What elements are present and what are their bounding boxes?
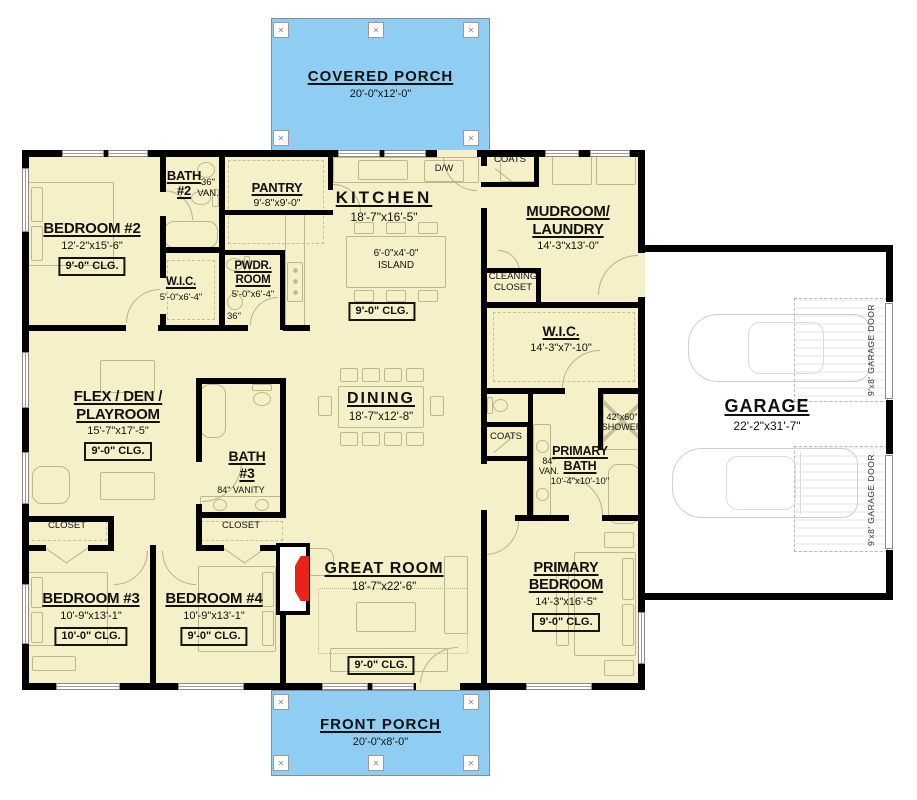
ceiling-note: 9'-0" CLG. — [84, 442, 151, 461]
wall — [481, 456, 531, 461]
room-title: BEDROOM #3 — [42, 590, 139, 608]
front-porch-dims: 20'-0"x8'-0" — [353, 736, 408, 749]
truck-bed-line — [800, 452, 801, 514]
wall — [196, 378, 202, 462]
bedroom4-label: BEDROOM #4 10'-9"x13'-1" 9'-0" CLG. — [165, 590, 262, 646]
pillow-symbol — [31, 187, 43, 222]
chair-symbol — [362, 432, 380, 446]
dresser-symbol — [32, 656, 76, 671]
window — [108, 150, 148, 157]
flex-room-label: FLEX / DEN / PLAYROOM 15'-7"x17'-5" 9'-0… — [55, 388, 181, 461]
ceiling-note: 9'-0" CLG. — [58, 257, 125, 276]
chair-symbol — [406, 432, 424, 446]
porch-column-icon — [273, 130, 289, 146]
wall — [600, 388, 645, 394]
room-dims: 18'-7"x12'-8" — [349, 411, 413, 425]
coats-closet-label: COATS — [490, 432, 522, 443]
wall — [527, 515, 569, 521]
wall — [22, 325, 126, 331]
window — [526, 683, 592, 690]
ceiling-note: 9'-0" CLG. — [180, 627, 247, 646]
front-porch-title: FRONT PORCH — [320, 716, 441, 734]
car-cabin-icon — [748, 322, 824, 374]
wall — [219, 210, 333, 215]
covered-porch-dims: 20'-0"x12'-0" — [350, 88, 412, 101]
great-room-label: GREAT ROOM 18'-7"x22'-6" — [324, 560, 443, 594]
garage-door-label: 9'x8' GARAGE DOOR — [862, 300, 880, 400]
island-text: ISLAND — [378, 260, 414, 271]
toilet-symbol — [493, 399, 508, 412]
wall — [219, 250, 285, 255]
room-title: BEDROOM #4 — [165, 590, 262, 608]
window — [62, 150, 104, 157]
room-dims: 5'-0"x6'-4" — [232, 289, 275, 300]
wall — [527, 422, 533, 518]
sink-symbol — [213, 499, 227, 511]
room-dims: 14'-3"x13'-0" — [537, 240, 599, 253]
wall — [280, 250, 285, 330]
primary-bedroom-label: PRIMARY BEDROOM 14'-3"x16'-5" 9'-0" CLG. — [517, 560, 615, 632]
stove-symbol — [287, 262, 303, 302]
door-opening — [638, 253, 645, 297]
toilet-tank-symbol — [487, 397, 493, 414]
shower-label: 42"x60" SHOWER — [599, 412, 645, 433]
coats-closet-label: COATS — [494, 155, 526, 166]
vanity-note: 84" VANITY — [217, 485, 265, 495]
floor-plan: COVERED PORCH 20'-0"x12'-0" FRONT PORCH … — [0, 0, 917, 800]
wall — [280, 614, 286, 683]
table-symbol — [100, 472, 155, 500]
vanity-note: 36" VAN. — [195, 178, 221, 200]
room-dims: 12'-2"x15'-6" — [61, 240, 123, 253]
chair-symbol — [430, 396, 444, 416]
kitchen-label: KITCHEN 18'-7"x16'-5" — [336, 188, 433, 224]
room-dims: 9'-8"x9'-0" — [253, 197, 300, 209]
wall — [158, 325, 248, 331]
room-title: MUDROOM/ LAUNDRY — [516, 203, 620, 238]
washer-symbol — [552, 155, 592, 185]
room-title: KITCHEN — [336, 188, 433, 208]
room-title: DINING — [347, 390, 415, 409]
room-title: GREAT ROOM — [324, 560, 443, 579]
ceiling-note: 10'-0" CLG. — [54, 627, 127, 646]
pillow-symbol — [31, 577, 43, 608]
window — [545, 150, 579, 157]
dryer-symbol — [596, 155, 636, 185]
window — [638, 612, 645, 664]
front-porch-label: FRONT PORCH 20'-0"x8'-0" — [320, 716, 441, 749]
pillow-symbol — [622, 604, 634, 646]
garage-door-label: 9'x8' GARAGE DOOR — [862, 450, 880, 550]
wall — [22, 545, 46, 551]
pillow-symbol — [31, 226, 43, 261]
window — [384, 150, 426, 157]
chair-symbol — [362, 368, 380, 382]
bath3-label: BATH #3 — [222, 448, 272, 481]
window — [56, 683, 120, 690]
bedroom2-label: BEDROOM #2 12'-2"x15'-6" 9'-0" CLG. — [43, 220, 140, 276]
chair-symbol — [340, 368, 358, 382]
ceiling-note: 9'-0" CLG. — [532, 613, 599, 632]
window — [338, 150, 380, 157]
bathtub-symbol — [164, 221, 218, 248]
window — [372, 683, 414, 690]
wall — [645, 245, 893, 252]
wall — [528, 388, 533, 422]
cleaning-closet-label: CLEANING CLOSET — [484, 272, 542, 294]
room-title: GARAGE — [724, 396, 809, 417]
covered-porch-title: COVERED PORCH — [308, 68, 454, 86]
window — [590, 150, 630, 157]
chair-symbol — [384, 432, 402, 446]
window — [22, 352, 29, 408]
armchair-symbol — [32, 466, 70, 504]
wall — [481, 510, 487, 690]
pillow-symbol — [262, 611, 274, 646]
room-title: BATH #3 — [222, 448, 272, 481]
door-opening — [416, 683, 460, 690]
sofa-symbol — [444, 556, 468, 634]
porch-column-icon — [463, 22, 479, 38]
pillow-symbol — [622, 558, 634, 600]
dining-label: DINING 18'-7"x12'-8" — [347, 390, 415, 424]
nightstand-symbol — [604, 532, 634, 548]
island-dims: 6'-0"x4'-0" — [374, 248, 419, 259]
toilet-tank-symbol — [252, 384, 272, 391]
room-title: PANTRY — [252, 180, 303, 195]
porch-column-icon — [463, 694, 479, 710]
room-title: BEDROOM #2 — [43, 220, 140, 238]
stool-symbol — [354, 290, 374, 302]
pillow-symbol — [262, 572, 274, 607]
wall — [645, 593, 893, 600]
closet-label: CLOSET — [222, 521, 260, 532]
closet-label: CLOSET — [48, 521, 86, 532]
porch-column-icon — [463, 755, 479, 771]
chair-symbol — [340, 432, 358, 446]
garage-door-panel — [885, 303, 893, 399]
pantry-label: PANTRY 9'-8"x9'-0" — [252, 180, 303, 210]
wall — [160, 247, 225, 253]
wall — [481, 422, 531, 427]
primary-wic-label: W.I.C. 14'-3"x7'-10" — [530, 323, 592, 354]
chair-symbol — [318, 396, 332, 416]
porch-column-icon — [273, 755, 289, 771]
window — [22, 584, 29, 644]
bathtub-symbol — [200, 384, 226, 438]
room-title: FLEX / DEN / PLAYROOM — [55, 388, 181, 423]
dishwasher-label: D/W — [435, 164, 453, 175]
ceiling-note: 9'-0" CLG. — [347, 656, 414, 675]
porch-column-icon — [368, 22, 384, 38]
wall — [602, 515, 645, 521]
island-label: 6'-0"x4'-0" ISLAND — [361, 248, 431, 271]
wall — [481, 182, 539, 187]
wall — [886, 550, 893, 600]
vanity-note: 84" VAN. — [535, 456, 563, 477]
kitchen-ceiling-label: 9'-0" CLG. — [348, 302, 415, 321]
stool-symbol — [386, 290, 406, 302]
pillow-symbol — [31, 612, 43, 643]
room-dims: 10'-9"x13'-1" — [183, 610, 245, 623]
garage-label: GARAGE 22'-2"x31'-7" — [724, 396, 809, 433]
wall — [481, 388, 565, 394]
fireplace-firebox-icon — [295, 556, 309, 601]
wall — [328, 150, 333, 190]
window — [22, 452, 29, 504]
wall — [534, 150, 539, 187]
great-room-ceiling-label: 9'-0" CLG. — [347, 656, 414, 675]
wall — [481, 302, 645, 308]
door-opening — [437, 150, 477, 157]
room-title: PWDR. ROOM — [227, 260, 279, 287]
window — [22, 168, 29, 232]
sink-symbol — [255, 499, 269, 511]
room-dims: 10'-9"x13'-1" — [60, 610, 122, 623]
nightstand-symbol — [604, 660, 634, 676]
coffee-table-symbol — [356, 602, 416, 632]
room-dims: 15'-7"x17'-5" — [87, 425, 149, 438]
stool-symbol — [418, 290, 438, 302]
mudroom-label: MUDROOM/ LAUNDRY 14'-3"x13'-0" — [516, 203, 620, 253]
chair-symbol — [406, 368, 424, 382]
wall — [886, 400, 893, 454]
porch-column-icon — [273, 22, 289, 38]
room-dims: 14'-3"x7'-10" — [530, 342, 592, 355]
wall — [196, 545, 224, 551]
wall — [219, 150, 225, 252]
wall — [886, 245, 893, 302]
wall — [196, 512, 286, 518]
bedroom3-label: BEDROOM #3 10'-9"x13'-1" 10'-0" CLG. — [42, 590, 139, 646]
porch-column-icon — [463, 130, 479, 146]
chair-symbol — [384, 368, 402, 382]
ceiling-note: 9'-0" CLG. — [348, 302, 415, 321]
room-dims: 18'-7"x16'-5" — [350, 210, 417, 224]
window — [322, 683, 368, 690]
room-dims: 10'-4"x10'-10" — [551, 476, 609, 487]
wall — [219, 252, 225, 330]
powder-room-label: PWDR. ROOM 5'-0"x6'-4" — [227, 260, 279, 300]
room-dims: 22'-2"x31'-7" — [733, 419, 800, 433]
wall — [280, 378, 286, 518]
toilet-symbol — [253, 392, 271, 406]
kitchen-sink-symbol — [358, 160, 408, 180]
room-title: W.I.C. — [166, 276, 196, 290]
covered-porch-label: COVERED PORCH 20'-0"x12'-0" — [308, 68, 454, 101]
room-dims: 18'-7"x22'-6" — [352, 581, 416, 595]
wall — [481, 150, 487, 166]
wic2-label: W.I.C. 5'-0"x6'-4" — [160, 276, 203, 303]
wall — [88, 545, 114, 551]
window — [178, 683, 244, 690]
room-dims: 5'-0"x6'-4" — [160, 292, 203, 303]
room-dims: 14'-3"x16'-5" — [535, 596, 597, 609]
wall — [196, 378, 286, 384]
garage-door-panel — [885, 455, 893, 549]
truck-cabin-icon — [726, 456, 796, 510]
wall — [283, 325, 310, 331]
room-title: W.I.C. — [543, 323, 580, 340]
porch-column-icon — [273, 694, 289, 710]
wall — [150, 545, 156, 690]
room-title: PRIMARY BEDROOM — [517, 560, 615, 594]
sink-symbol — [536, 488, 549, 501]
size-note: 36" — [227, 312, 241, 323]
porch-column-icon — [368, 755, 384, 771]
